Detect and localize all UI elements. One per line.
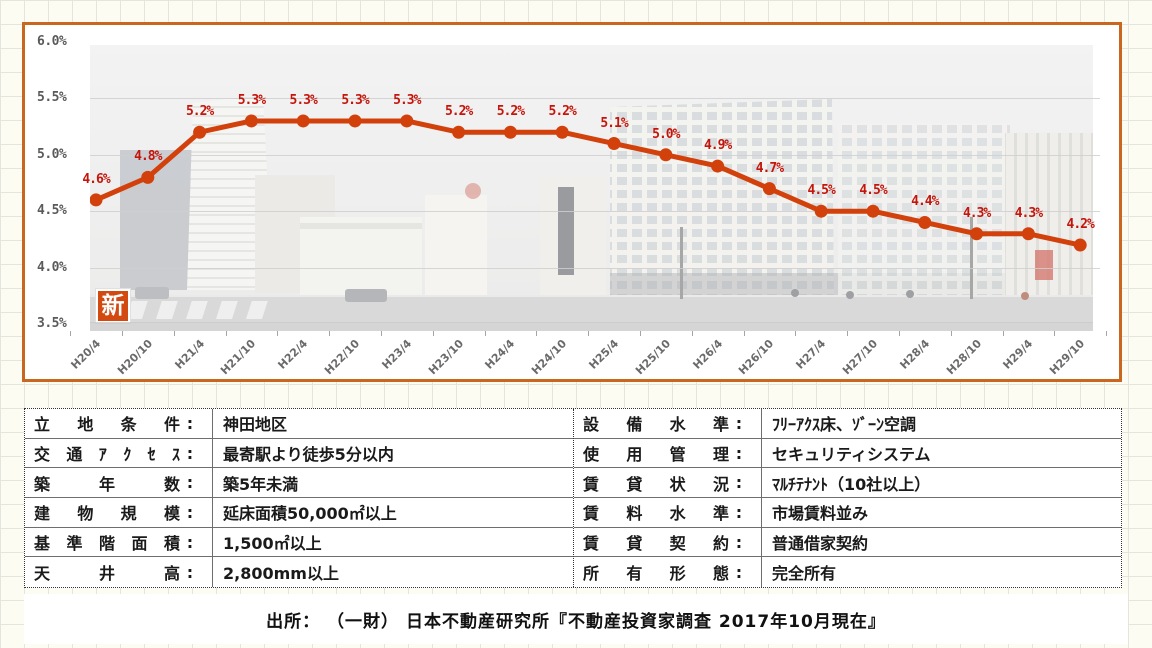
- row-label: 賃貸契約: [583, 530, 729, 554]
- table-row: 使用管理: セキュリティシステム: [574, 439, 1121, 469]
- row-label: 交通ｱｸｾｽ: [34, 441, 180, 465]
- row-label: 所有形態: [583, 560, 729, 584]
- table-row: 交通ｱｸｾｽ: 最寄駅より徒歩5分以内: [25, 439, 573, 469]
- row-value: 普通借家契約: [762, 530, 1121, 554]
- table-row: 賃貸状況: ﾏﾙﾁﾃﾅﾝﾄ（10社以上）: [574, 468, 1121, 498]
- data-point-marker: [1074, 239, 1087, 252]
- row-value: 築5年未満: [213, 471, 573, 495]
- data-point-label: 4.7%: [743, 161, 795, 176]
- data-point-label: 5.0%: [640, 127, 692, 142]
- label-colon: :: [180, 533, 200, 552]
- table-row: 基準階面積: 1,500㎡以上: [25, 528, 573, 558]
- data-point-label: 5.2%: [174, 104, 226, 119]
- data-point-label: 4.3%: [951, 206, 1003, 221]
- table-row: 賃貸契約: 普通借家契約: [574, 528, 1121, 558]
- label-colon: :: [180, 444, 200, 463]
- data-point-marker: [90, 193, 103, 206]
- row-value: 最寄駅より徒歩5分以内: [213, 441, 573, 465]
- row-value: 延床面積50,000㎡以上: [213, 500, 573, 524]
- trend-line: [96, 121, 1080, 245]
- data-point-label: 5.2%: [433, 104, 485, 119]
- data-point-marker: [918, 216, 931, 229]
- data-point-label: 5.3%: [277, 93, 329, 108]
- label-colon: :: [180, 414, 200, 433]
- data-point-marker: [815, 205, 828, 218]
- y-axis-tick-label: 4.5%: [37, 203, 89, 221]
- data-point-marker: [970, 227, 983, 240]
- y-axis-tick-label: 3.5%: [37, 316, 89, 334]
- data-point-label: 4.8%: [122, 149, 174, 164]
- data-point-marker: [608, 137, 621, 150]
- data-point-marker: [711, 160, 724, 173]
- data-point-label: 5.3%: [225, 93, 277, 108]
- label-colon: :: [729, 414, 749, 433]
- label-colon: :: [180, 503, 200, 522]
- label-colon: :: [729, 533, 749, 552]
- label-colon: :: [180, 473, 200, 492]
- source-band: 出所： （一財） 日本不動産研究所『不動産投資家調査 2017年10月現在』: [24, 594, 1128, 644]
- data-point-label: 5.3%: [329, 93, 381, 108]
- table-row: 立地条件: 神田地区: [25, 409, 573, 439]
- data-point-marker: [504, 126, 517, 139]
- x-axis-tick: [1106, 331, 1107, 336]
- data-point-marker: [297, 114, 310, 127]
- row-label: 使用管理: [583, 441, 729, 465]
- label-colon: :: [729, 444, 749, 463]
- data-point-marker: [400, 114, 413, 127]
- table-row: 所有形態: 完全所有: [574, 557, 1121, 587]
- chart-plot-area: 新 4.6%4.8%5.2%5.3%5.3%5.3%5.3%5.2%5.2%5.…: [90, 25, 1100, 379]
- data-point-label: 5.3%: [381, 93, 433, 108]
- data-point-label: 4.3%: [1002, 206, 1054, 221]
- table-row: 賃料水準: 市場賃料並み: [574, 498, 1121, 528]
- row-value: 神田地区: [213, 411, 573, 435]
- data-point-label: 4.5%: [847, 183, 899, 198]
- row-value: 2,800mm以上: [213, 560, 573, 584]
- data-point-label: 5.1%: [588, 116, 640, 131]
- data-point-marker: [763, 182, 776, 195]
- data-point-marker: [1022, 227, 1035, 240]
- label-colon: :: [729, 563, 749, 582]
- data-point-marker: [349, 114, 362, 127]
- data-point-label: 4.4%: [899, 194, 951, 209]
- y-axis-tick-label: 5.0%: [37, 147, 89, 165]
- table-row: 天井高: 2,800mm以上: [25, 557, 573, 587]
- row-label: 天井高: [34, 560, 180, 584]
- data-point-marker: [867, 205, 880, 218]
- property-conditions-table: 立地条件: 神田地区 交通ｱｸｾｽ: 最寄駅より徒歩5分以内 築年数: 築5年未…: [24, 408, 1122, 588]
- row-value: ﾌﾘｰｱｸｽ床、ｿﾞｰﾝ空調: [762, 411, 1121, 435]
- data-point-marker: [193, 126, 206, 139]
- data-point-marker: [659, 148, 672, 161]
- row-label: 賃料水準: [583, 500, 729, 524]
- label-colon: :: [729, 503, 749, 522]
- row-label: 築年数: [34, 471, 180, 495]
- label-colon: :: [180, 563, 200, 582]
- conditions-left-column: 立地条件: 神田地区 交通ｱｸｾｽ: 最寄駅より徒歩5分以内 築年数: 築5年未…: [25, 409, 573, 587]
- row-label: 立地条件: [34, 411, 180, 435]
- y-axis-tick-label: 6.0%: [37, 34, 89, 52]
- table-row: 設備水準: ﾌﾘｰｱｸｽ床、ｿﾞｰﾝ空調: [574, 409, 1121, 439]
- row-value: 市場賃料並み: [762, 500, 1121, 524]
- data-point-label: 5.2%: [536, 104, 588, 119]
- data-point-marker: [452, 126, 465, 139]
- data-point-marker: [556, 126, 569, 139]
- data-point-label: 4.9%: [692, 138, 744, 153]
- table-row: 建物規模: 延床面積50,000㎡以上: [25, 498, 573, 528]
- source-text: 出所： （一財） 日本不動産研究所『不動産投資家調査 2017年10月現在』: [266, 607, 886, 632]
- row-label: 賃貸状況: [583, 471, 729, 495]
- row-label: 設備水準: [583, 411, 729, 435]
- conditions-right-column: 設備水準: ﾌﾘｰｱｸｽ床、ｿﾞｰﾝ空調 使用管理: セキュリティシステム 賃貸…: [573, 409, 1121, 587]
- row-value: 完全所有: [762, 560, 1121, 584]
- data-point-label: 4.2%: [1054, 217, 1106, 232]
- label-colon: :: [729, 473, 749, 492]
- data-point-marker: [245, 114, 258, 127]
- data-point-label: 4.6%: [70, 172, 122, 187]
- row-value: ﾏﾙﾁﾃﾅﾝﾄ（10社以上）: [762, 471, 1121, 495]
- y-axis-tick-label: 4.0%: [37, 260, 89, 278]
- data-point-label: 5.2%: [484, 104, 536, 119]
- data-point-label: 4.5%: [795, 183, 847, 198]
- cap-rate-chart: 新 4.6%4.8%5.2%5.3%5.3%5.3%5.3%5.2%5.2%5.…: [22, 22, 1122, 382]
- table-row: 築年数: 築5年未満: [25, 468, 573, 498]
- row-value: セキュリティシステム: [762, 441, 1121, 465]
- report-sheet: 新 4.6%4.8%5.2%5.3%5.3%5.3%5.3%5.2%5.2%5.…: [0, 0, 1152, 648]
- y-axis-tick-label: 5.5%: [37, 90, 89, 108]
- row-label: 建物規模: [34, 500, 180, 524]
- row-label: 基準階面積: [34, 530, 180, 554]
- row-value: 1,500㎡以上: [213, 530, 573, 554]
- data-point-marker: [141, 171, 154, 184]
